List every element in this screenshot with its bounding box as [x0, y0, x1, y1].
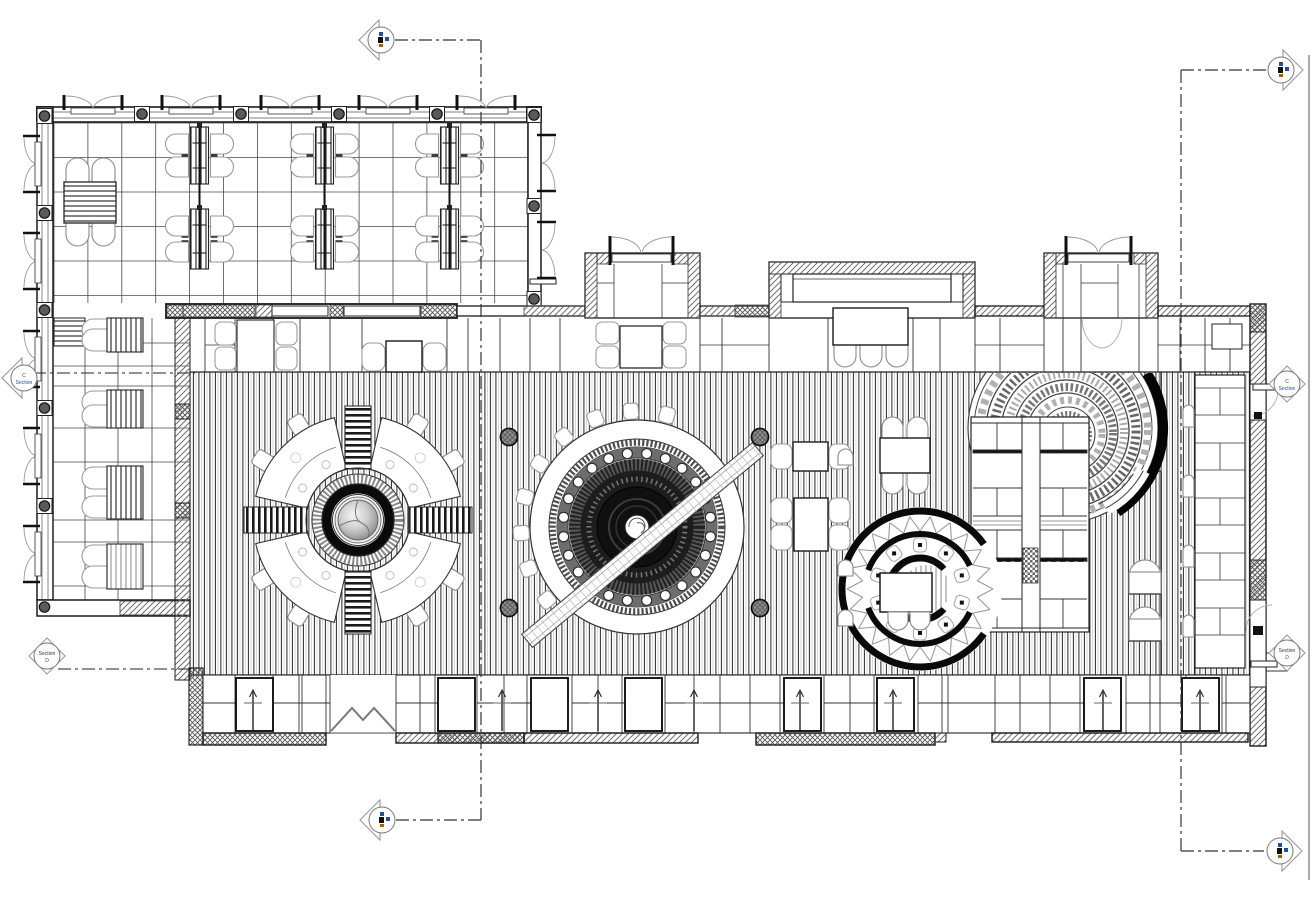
svg-text:Section: Section [16, 380, 33, 386]
svg-text:C: C [1285, 379, 1289, 385]
svg-text:Section: Section [1279, 386, 1296, 392]
svg-text:Section: Section [39, 651, 56, 657]
svg-text:D: D [1285, 655, 1289, 661]
svg-text:Section: Section [1279, 648, 1296, 654]
svg-text:D: D [45, 658, 49, 664]
svg-text:C: C [22, 373, 26, 379]
